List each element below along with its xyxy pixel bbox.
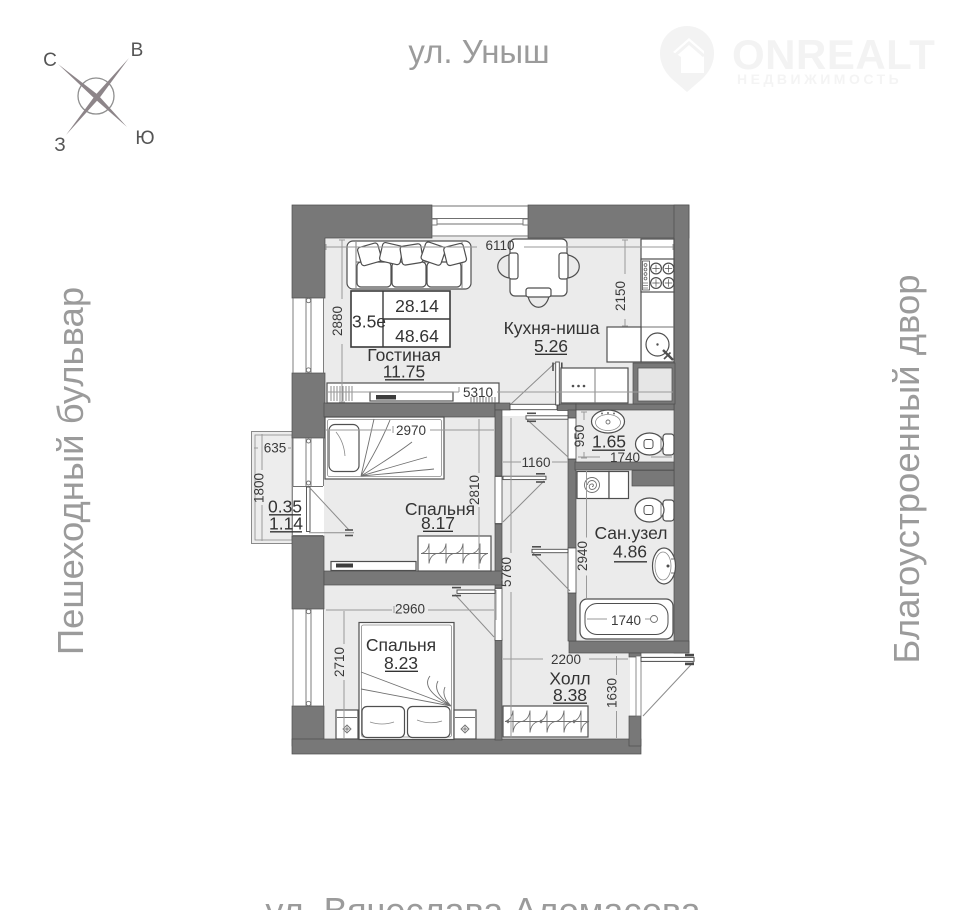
svg-text:Пешеходный бульвар: Пешеходный бульвар	[50, 287, 91, 655]
svg-text:1.65: 1.65	[592, 432, 626, 452]
svg-text:8.17: 8.17	[421, 513, 455, 533]
svg-text:28.14: 28.14	[395, 296, 439, 316]
svg-text:5760: 5760	[499, 557, 514, 587]
svg-text:Кухня-ниша: Кухня-ниша	[504, 318, 600, 338]
svg-text:В: В	[131, 40, 144, 61]
svg-text:8.23: 8.23	[384, 653, 418, 673]
svg-text:3.5е: 3.5е	[352, 312, 386, 332]
svg-text:5310: 5310	[463, 385, 493, 400]
svg-text:950: 950	[572, 425, 587, 448]
svg-text:2940: 2940	[575, 541, 590, 571]
svg-text:4.86: 4.86	[613, 542, 647, 562]
svg-text:2880: 2880	[330, 306, 345, 336]
svg-text:Сан.узел: Сан.узел	[594, 523, 667, 543]
svg-text:8.38: 8.38	[553, 685, 587, 705]
svg-text:1.14: 1.14	[269, 514, 303, 534]
svg-text:1800: 1800	[252, 473, 267, 503]
svg-text:1740: 1740	[610, 450, 640, 465]
svg-text:Благоустроенный двор: Благоустроенный двор	[886, 274, 927, 663]
svg-text:2200: 2200	[551, 652, 581, 667]
svg-text:5.26: 5.26	[534, 336, 568, 356]
svg-text:635: 635	[264, 441, 287, 456]
svg-text:С: С	[43, 50, 57, 71]
svg-text:2970: 2970	[396, 423, 426, 438]
svg-text:1160: 1160	[521, 455, 550, 470]
svg-text:1740: 1740	[611, 613, 641, 628]
svg-text:6110: 6110	[485, 238, 514, 253]
svg-text:2710: 2710	[332, 647, 347, 677]
svg-text:48.64: 48.64	[395, 326, 439, 346]
svg-text:З: З	[54, 135, 65, 156]
svg-text:ул. Уныш: ул. Уныш	[408, 33, 549, 70]
svg-text:2960: 2960	[395, 602, 425, 617]
svg-text:Ю: Ю	[135, 128, 154, 149]
svg-text:ул. Вячеслава Аломасова: ул. Вячеслава Аломасова	[265, 890, 701, 910]
svg-text:НЕДВИЖИМОСТЬ: НЕДВИЖИМОСТЬ	[737, 71, 902, 87]
svg-text:Спальня: Спальня	[366, 635, 436, 655]
svg-text:2150: 2150	[613, 281, 628, 311]
svg-text:11.75: 11.75	[383, 362, 426, 382]
svg-text:1630: 1630	[605, 678, 620, 708]
